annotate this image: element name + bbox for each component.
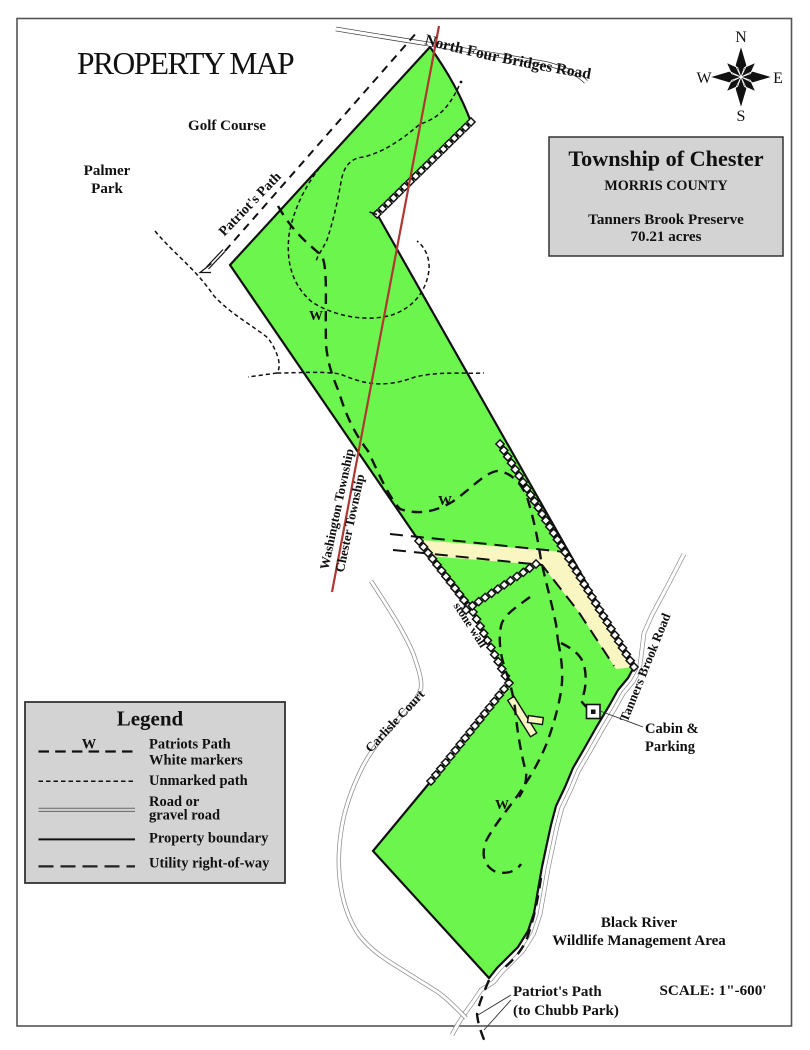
svg-text:Wildlife Management Area: Wildlife Management Area — [552, 933, 726, 949]
svg-text:White markers: White markers — [149, 752, 243, 768]
svg-text:SCALE: 1"-600': SCALE: 1"-600' — [660, 983, 767, 999]
svg-text:Park: Park — [91, 181, 123, 197]
svg-text:70.21 acres: 70.21 acres — [631, 229, 702, 245]
svg-text:PROPERTY MAP: PROPERTY MAP — [77, 46, 294, 81]
svg-text:Golf Course: Golf Course — [188, 118, 266, 134]
svg-text:W: W — [438, 494, 452, 509]
svg-text:Legend: Legend — [117, 707, 184, 731]
svg-text:Unmarked path: Unmarked path — [149, 773, 248, 789]
svg-text:Black River: Black River — [601, 915, 678, 931]
svg-text:W: W — [696, 70, 712, 87]
svg-text:W: W — [495, 798, 509, 813]
svg-text:N: N — [735, 29, 747, 46]
svg-text:Utility right-of-way: Utility right-of-way — [149, 856, 270, 872]
svg-text:(to Chubb Park): (to Chubb Park) — [513, 1003, 619, 1019]
svg-text:Carlisle Court: Carlisle Court — [362, 686, 428, 755]
svg-text:Palmer: Palmer — [84, 163, 131, 179]
svg-text:Parking: Parking — [645, 739, 696, 755]
svg-text:Tanners Brook Preserve: Tanners Brook Preserve — [588, 212, 744, 228]
svg-text:Cabin &: Cabin & — [645, 721, 699, 737]
svg-text:Township of Chester: Township of Chester — [568, 146, 763, 171]
svg-text:S: S — [737, 108, 746, 125]
svg-text:W: W — [82, 737, 97, 753]
svg-text:MORRIS COUNTY: MORRIS COUNTY — [604, 178, 727, 194]
svg-text:gravel road: gravel road — [149, 807, 220, 823]
svg-text:Property boundary: Property boundary — [149, 831, 269, 847]
svg-text:W: W — [309, 309, 323, 324]
svg-text:E: E — [773, 70, 783, 87]
svg-text:Patriots Path: Patriots Path — [149, 737, 231, 753]
svg-text:Patriot's Path: Patriot's Path — [513, 984, 602, 1000]
